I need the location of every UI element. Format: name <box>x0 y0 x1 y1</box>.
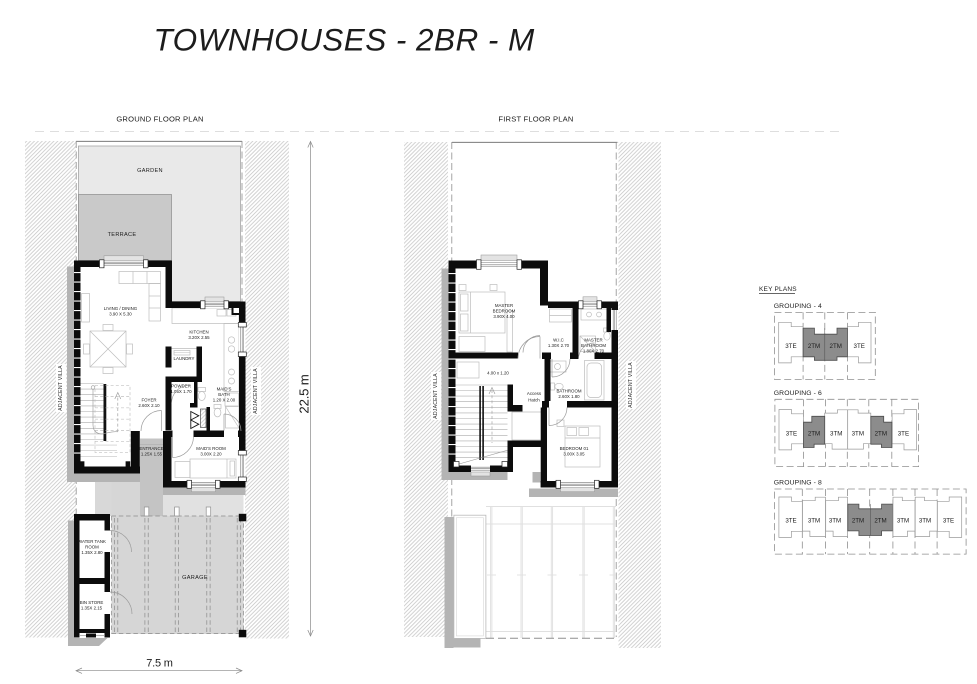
svg-text:3TE: 3TE <box>898 430 909 437</box>
svg-text:1.05X 1.70: 1.05X 1.70 <box>170 389 192 394</box>
svg-text:MAID'S ROOM: MAID'S ROOM <box>196 446 226 451</box>
svg-text:3.20X 2.55: 3.20X 2.55 <box>188 335 210 340</box>
svg-text:2TM: 2TM <box>808 430 820 437</box>
svg-text:MASTER: MASTER <box>495 303 513 308</box>
svg-text:1.20 X 2.00: 1.20 X 2.00 <box>213 398 236 403</box>
svg-text:3TM: 3TM <box>829 518 841 525</box>
svg-text:3TM: 3TM <box>919 518 931 525</box>
svg-text:LAUNDRY: LAUNDRY <box>174 356 195 361</box>
svg-text:KEY PLANS: KEY PLANS <box>759 286 797 293</box>
svg-text:1.35X 2.80: 1.35X 2.80 <box>81 550 103 555</box>
svg-text:BATH: BATH <box>218 392 229 397</box>
svg-text:Hatch: Hatch <box>528 398 540 403</box>
svg-text:2TM: 2TM <box>874 518 886 525</box>
svg-text:3TE: 3TE <box>854 343 865 350</box>
svg-text:3TE: 3TE <box>786 430 797 437</box>
svg-text:2.60X 1.80: 2.60X 1.80 <box>558 394 580 399</box>
svg-text:FIRST FLOOR PLAN: FIRST FLOOR PLAN <box>498 114 573 123</box>
svg-text:1.35X 2.15: 1.35X 2.15 <box>81 606 103 611</box>
svg-text:LIVING / DINING: LIVING / DINING <box>104 306 138 311</box>
svg-text:BATHROOM: BATHROOM <box>556 389 581 394</box>
svg-text:3.90X 4.00: 3.90X 4.00 <box>493 314 515 319</box>
svg-text:WATER TANK: WATER TANK <box>78 539 106 544</box>
svg-text:2TM: 2TM <box>875 430 887 437</box>
svg-text:3.00X 3.05: 3.00X 3.05 <box>563 452 585 457</box>
svg-text:4.00 x 1.20: 4.00 x 1.20 <box>487 371 509 376</box>
svg-text:2TM: 2TM <box>808 343 820 350</box>
svg-text:3TM: 3TM <box>897 518 909 525</box>
svg-text:MASTER: MASTER <box>584 338 602 343</box>
svg-text:W.I.C: W.I.C <box>553 338 564 343</box>
svg-text:KITCHEN: KITCHEN <box>189 330 208 335</box>
svg-text:GARAGE: GARAGE <box>182 575 208 581</box>
svg-text:1.30X 2.70: 1.30X 2.70 <box>548 343 570 348</box>
svg-text:ADJACENT VILLA: ADJACENT VILLA <box>433 373 439 419</box>
svg-text:GROUPING - 8: GROUPING - 8 <box>774 479 822 486</box>
svg-text:Access: Access <box>527 391 542 396</box>
svg-text:2TM: 2TM <box>852 518 864 525</box>
svg-text:ADJACENT VILLA: ADJACENT VILLA <box>628 362 634 408</box>
svg-text:7.5 m: 7.5 m <box>146 658 173 670</box>
svg-text:3TM: 3TM <box>830 430 842 437</box>
svg-text:BEDROOM: BEDROOM <box>493 309 516 314</box>
svg-text:22.5 m: 22.5 m <box>296 374 311 413</box>
svg-text:ADJACENT VILLA: ADJACENT VILLA <box>58 365 64 411</box>
svg-text:1.25X 1.55: 1.25X 1.55 <box>141 452 163 457</box>
svg-text:GARDEN: GARDEN <box>137 168 163 174</box>
svg-text:3.00X 2.20: 3.00X 2.20 <box>200 452 222 457</box>
svg-text:3TE: 3TE <box>943 518 954 525</box>
svg-text:GROUPING - 6: GROUPING - 6 <box>774 390 822 397</box>
svg-text:2.60X 2.10: 2.60X 2.10 <box>138 403 160 408</box>
svg-text:TERRACE: TERRACE <box>108 232 137 238</box>
svg-text:3TM: 3TM <box>852 430 864 437</box>
svg-text:FOYER: FOYER <box>141 398 156 403</box>
svg-text:3TE: 3TE <box>785 518 796 525</box>
svg-text:2TM: 2TM <box>830 343 842 350</box>
svg-text:TOWNHOUSES - 2BR - M: TOWNHOUSES - 2BR - M <box>154 22 535 58</box>
svg-text:3TE: 3TE <box>785 343 796 350</box>
svg-text:ENTRANCE: ENTRANCE <box>139 446 163 451</box>
svg-text:BIN STORE: BIN STORE <box>80 600 104 605</box>
svg-text:GROUND FLOOR PLAN: GROUND FLOOR PLAN <box>116 114 203 123</box>
svg-text:ADJACENT VILLA: ADJACENT VILLA <box>253 368 259 414</box>
svg-text:3TM: 3TM <box>808 518 820 525</box>
svg-text:BEDROOM 01: BEDROOM 01 <box>560 446 589 451</box>
svg-text:ROOM: ROOM <box>85 545 99 550</box>
svg-text:3.90 X 5.30: 3.90 X 5.30 <box>109 312 132 317</box>
svg-text:GROUPING - 4: GROUPING - 4 <box>774 303 822 310</box>
svg-text:BATHROOM: BATHROOM <box>581 343 606 348</box>
svg-text:MAID'S: MAID'S <box>217 387 232 392</box>
svg-text:POWDER: POWDER <box>171 384 191 389</box>
